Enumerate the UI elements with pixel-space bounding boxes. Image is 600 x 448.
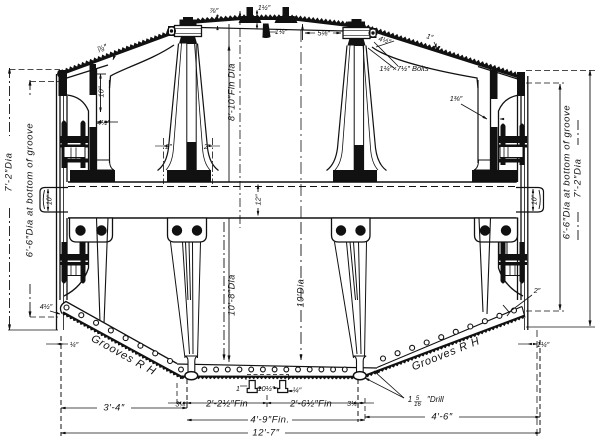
svg-text:7′-2″Dia: 7′-2″Dia	[4, 152, 15, 192]
svg-text:1″: 1″	[425, 31, 434, 42]
svg-text:″Drill: ″Drill	[427, 395, 444, 404]
svg-text:16: 16	[414, 402, 421, 408]
svg-text:4′-6″: 4′-6″	[431, 412, 453, 423]
svg-text:1: 1	[408, 395, 412, 404]
svg-text:1¼″: 1¼″	[275, 27, 288, 36]
svg-text:2′-2½″Fin: 2′-2½″Fin	[205, 399, 248, 409]
svg-text:3′-4″: 3′-4″	[103, 403, 125, 414]
svg-text:8′-10″Fin Dia: 8′-10″Fin Dia	[227, 63, 237, 121]
svg-text:3¼″: 3¼″	[175, 402, 188, 409]
svg-text:2″: 2″	[533, 286, 541, 295]
svg-text:4′-9″Fin.: 4′-9″Fin.	[250, 415, 289, 426]
svg-text:10′-8″Dia: 10′-8″Dia	[227, 274, 237, 316]
svg-text:3¼: 3¼	[347, 401, 357, 408]
svg-text:10″: 10″	[532, 194, 539, 205]
svg-text:7′-2″Dia: 7′-2″Dia	[573, 158, 584, 198]
svg-text:¼″: ¼″	[70, 340, 79, 349]
svg-text:6′-6″Dia at bottom of groove: 6′-6″Dia at bottom of groove	[25, 123, 36, 257]
svg-text:1¼″: 1¼″	[537, 340, 550, 349]
svg-text:¼″: ¼″	[293, 386, 302, 395]
svg-text:2′-6½″Fin: 2′-6½″Fin	[289, 399, 332, 409]
svg-text:4½″: 4½″	[40, 302, 53, 311]
svg-text:1½″: 1½″	[258, 3, 271, 12]
svg-text:6′-6″Dia at bottom of groove: 6′-6″Dia at bottom of groove	[562, 105, 573, 239]
svg-text:12″: 12″	[254, 194, 263, 205]
svg-text:4½″: 4½″	[97, 118, 110, 127]
svg-text:1¼″×7½″ Bolts: 1¼″×7½″ Bolts	[379, 64, 429, 73]
svg-text:1⅜″: 1⅜″	[450, 94, 463, 103]
svg-text:12′-7″: 12′-7″	[252, 428, 279, 439]
svg-text:2″: 2″	[203, 144, 211, 151]
svg-text:2″: 2″	[164, 144, 172, 151]
svg-text:⅞″: ⅞″	[210, 6, 219, 15]
svg-text:10″: 10″	[47, 194, 54, 205]
svg-text:1: 1	[236, 386, 240, 393]
svg-text:⅞″: ⅞″	[96, 41, 110, 54]
svg-text:5⅛″: 5⅛″	[317, 29, 330, 38]
svg-text:10″: 10″	[97, 86, 106, 97]
svg-text:10′Dia: 10′Dia	[296, 279, 306, 308]
